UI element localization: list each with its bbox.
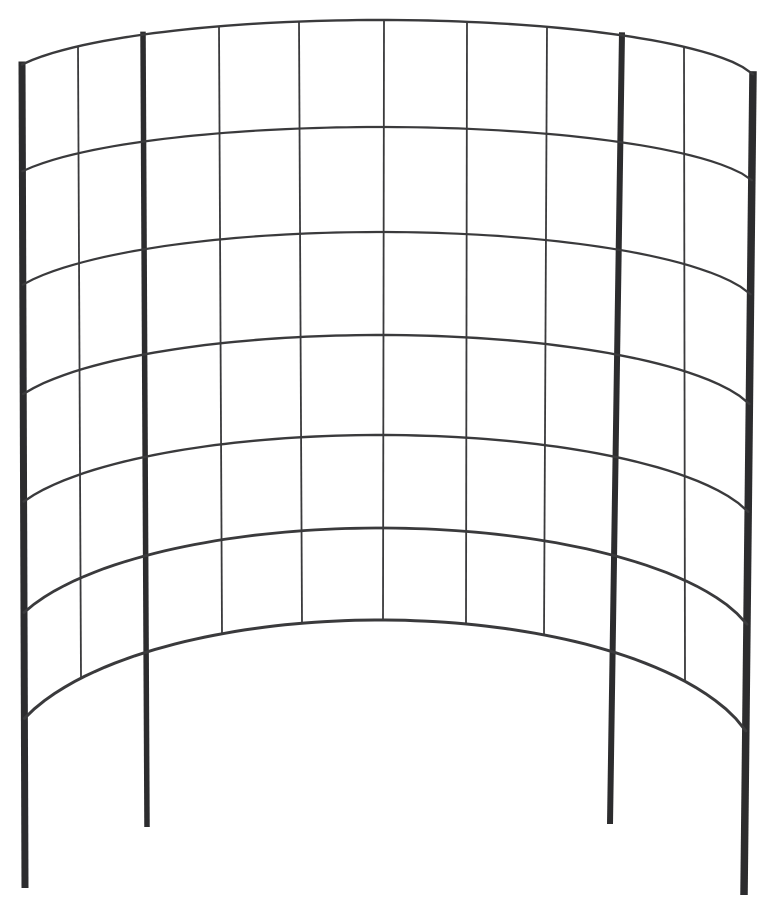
grid-horizontal-wire	[22, 127, 751, 180]
grid-horizontal-wire	[23, 232, 751, 294]
frame-post	[610, 32, 622, 824]
grid-horizontal-wire	[22, 20, 753, 74]
grid-vertical-wire	[383, 20, 384, 620]
grid-vertical-wire	[299, 22, 302, 624]
grid-vertical-wire	[466, 22, 467, 624]
grid-horizontal-wire	[24, 620, 745, 731]
product-photo	[0, 0, 768, 922]
grid-horizontal-wire	[24, 435, 749, 512]
frame-post	[744, 71, 753, 895]
grid-horizontal-wire	[23, 335, 749, 404]
grid-vertical-wire	[684, 47, 685, 682]
grid-vertical-wire	[544, 27, 547, 635]
grid-horizontal-wire	[24, 528, 747, 624]
grid-vertical-wire	[78, 46, 81, 678]
grid-vertical-wire	[219, 26, 222, 634]
trellis-image	[0, 0, 768, 922]
frame-post	[22, 62, 25, 889]
frame-post	[143, 32, 147, 827]
grid-horizontal-wires	[22, 20, 753, 731]
